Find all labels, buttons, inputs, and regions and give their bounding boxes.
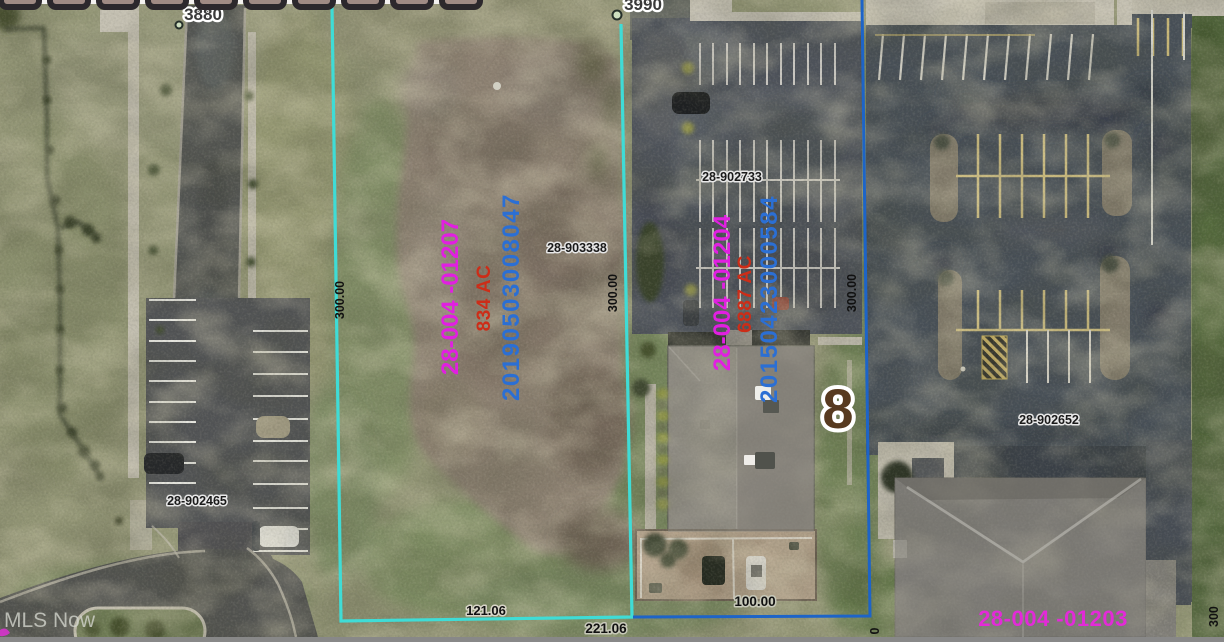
svg-text:28-004 -01204: 28-004 -01204	[709, 214, 736, 371]
svg-text:300.00: 300.00	[606, 274, 620, 312]
svg-text:20150423000584: 20150423000584	[756, 195, 783, 403]
svg-text:8: 8	[822, 377, 853, 440]
svg-text:28-902733: 28-902733	[702, 170, 762, 184]
svg-text:121.06: 121.06	[466, 603, 506, 618]
svg-text:0: 0	[868, 627, 882, 634]
svg-text:300: 300	[1207, 606, 1221, 627]
svg-text:100.00: 100.00	[734, 594, 775, 609]
svg-text:28-902465: 28-902465	[167, 494, 227, 508]
svg-text:28-903338: 28-903338	[547, 241, 607, 255]
svg-text:3990: 3990	[624, 0, 662, 14]
svg-text:28-902652: 28-902652	[1019, 413, 1079, 427]
svg-text:6887 AC: 6887 AC	[735, 255, 756, 333]
svg-text:28-004 -01203: 28-004 -01203	[978, 606, 1128, 631]
svg-text:300.00: 300.00	[845, 274, 859, 312]
svg-text:834 AC: 834 AC	[474, 265, 495, 332]
svg-text:20190503008047: 20190503008047	[498, 193, 525, 401]
svg-text:28-004 -01207: 28-004 -01207	[437, 219, 464, 375]
svg-text:300.00: 300.00	[333, 281, 347, 319]
svg-text:MLS Now: MLS Now	[4, 609, 96, 632]
svg-text:221.06: 221.06	[585, 621, 627, 636]
